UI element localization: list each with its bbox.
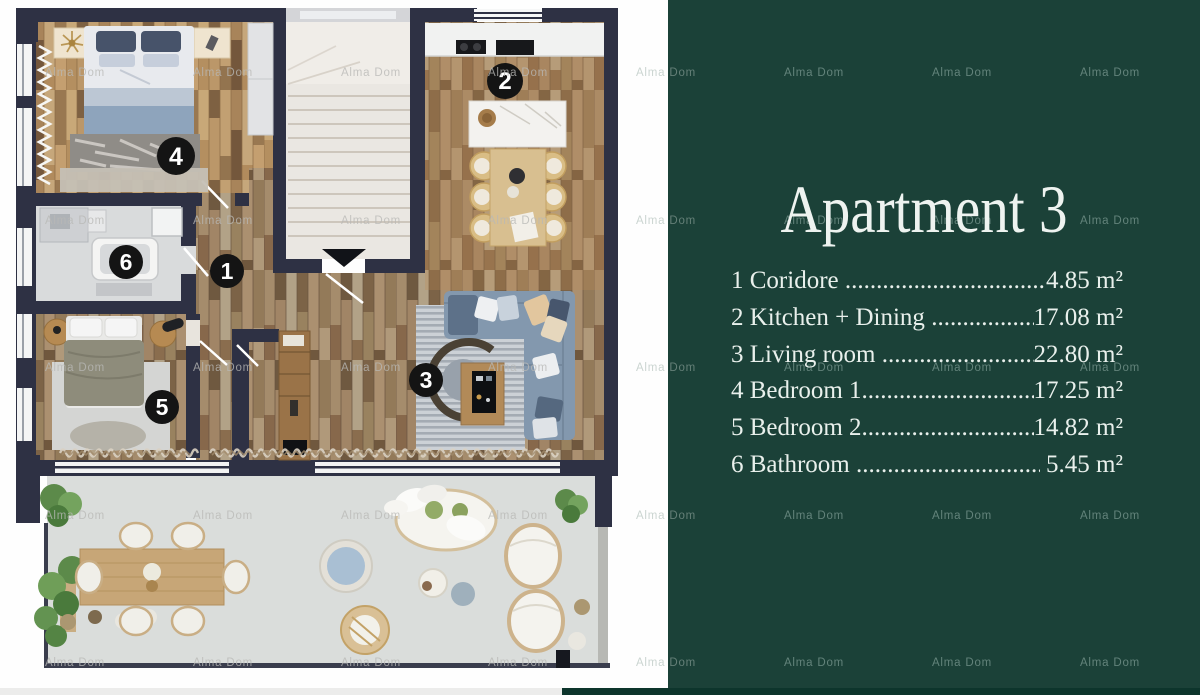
svg-text:3: 3 <box>420 367 433 393</box>
svg-text:4: 4 <box>169 143 183 171</box>
svg-text:1: 1 <box>221 258 234 284</box>
svg-text:6: 6 <box>120 249 133 275</box>
svg-text:5: 5 <box>156 394 169 420</box>
